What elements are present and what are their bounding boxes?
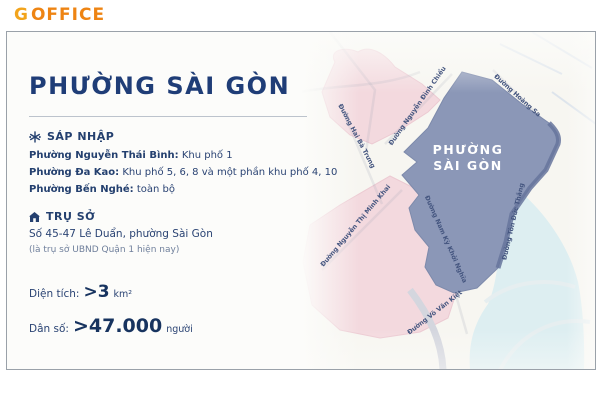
headquarters-address: Số 45-47 Lê Duẩn, phường Sài Gòn xyxy=(29,228,213,240)
merge-item-name: Phường Nguyễn Thái Bình: xyxy=(29,150,179,161)
population-stat: Dân số: >47.000 người xyxy=(29,315,193,337)
map-region-label-line2: SÀI GÒN xyxy=(433,158,503,173)
merge-heading-label: SÁP NHẬP xyxy=(47,130,114,143)
title-divider xyxy=(29,116,307,117)
map-region-label-line1: PHƯỜNG xyxy=(433,142,504,157)
area-unit: km² xyxy=(114,289,133,300)
merge-item: Phường Đa Kao: Khu phố 5, 6, 8 và một ph… xyxy=(29,164,337,181)
merge-item-detail: Khu phố 5, 6, 8 và một phần khu phố 4, 1… xyxy=(119,167,337,178)
area-label: Diện tích: xyxy=(29,288,79,300)
headquarters-heading-label: TRỤ SỞ xyxy=(46,210,95,223)
population-label: Dân số: xyxy=(29,323,69,335)
page-title: PHƯỜNG SÀI GÒN xyxy=(29,72,589,100)
merge-item-detail: Khu phố 1 xyxy=(179,150,233,161)
area-stat: Diện tích: >3 km² xyxy=(29,282,132,302)
infographic-card: PHƯỜNG SÀI GÒN Đường Nguyễn Đình Chiểu Đ… xyxy=(6,31,596,370)
merge-items: Phường Nguyễn Thái Bình: Khu phố 1 Phườn… xyxy=(29,147,337,198)
merge-item: Phường Nguyễn Thái Bình: Khu phố 1 xyxy=(29,147,337,164)
merge-item-detail: toàn bộ xyxy=(134,184,175,195)
headquarters-section-heading: TRỤ SỞ xyxy=(29,210,95,223)
merge-section-heading: SÁP NHẬP xyxy=(29,130,114,143)
headquarters-note: (là trụ sở UBND Quận 1 hiện nay) xyxy=(29,245,179,255)
merge-icon xyxy=(29,131,41,143)
goffice-logo: GOFFICE xyxy=(14,5,105,25)
street-label-namkykhoinghia: Đường Nam Kỳ Khởi Nghĩa xyxy=(423,194,470,284)
merge-item-name: Phường Bến Nghé: xyxy=(29,184,134,195)
logo-office: OFFICE xyxy=(31,5,105,25)
logo-g: G xyxy=(14,5,29,25)
street-label-tonducthang: Đường Tôn Đức Thắng xyxy=(499,182,526,261)
merge-item-name: Phường Đa Kao: xyxy=(29,167,119,178)
merge-item: Phường Bến Nghé: toàn bộ xyxy=(29,181,337,198)
area-value: >3 xyxy=(83,282,109,302)
street-label-vovankiet: Đường Võ Văn Kiệt xyxy=(406,289,464,337)
house-icon xyxy=(29,212,40,222)
population-value: >47.000 xyxy=(73,315,162,337)
street-label-haibatrung: Đường Hai Bà Trưng xyxy=(336,103,377,170)
population-unit: người xyxy=(166,324,193,335)
